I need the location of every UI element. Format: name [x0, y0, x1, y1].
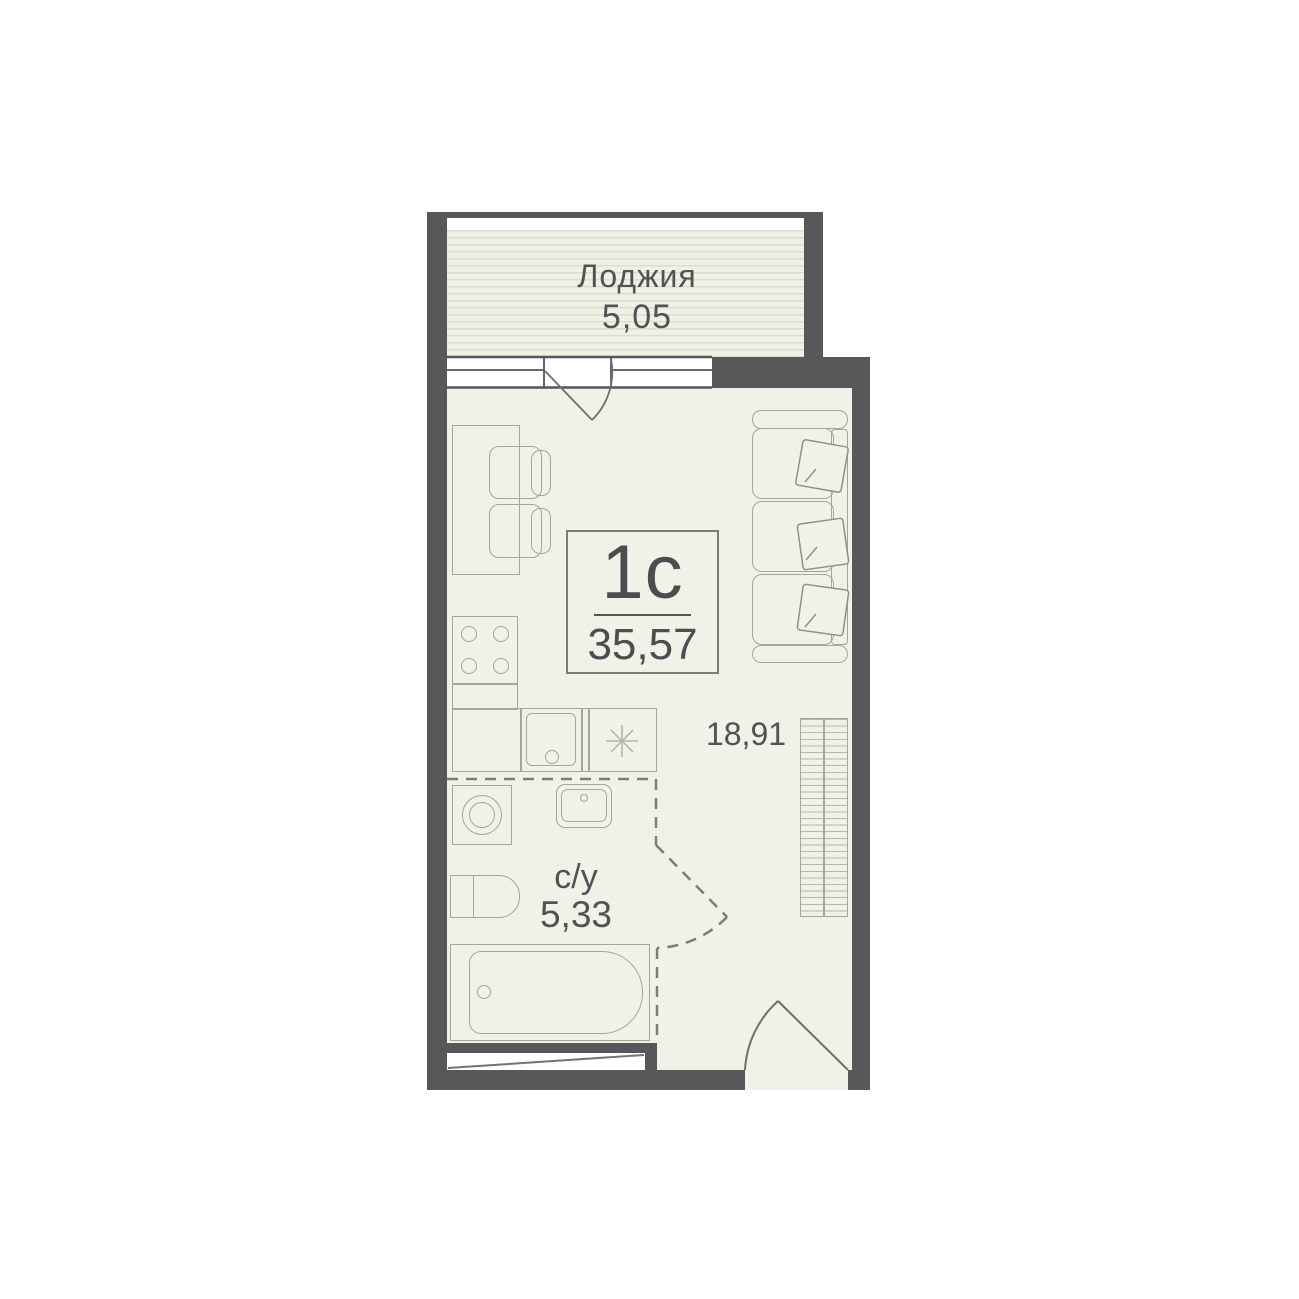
sofa-backrest — [831, 429, 848, 645]
bathtub-drain — [477, 985, 491, 999]
loggia-area: 5,05 — [447, 298, 827, 337]
floor-plan: Лоджия 5,05 1с 35,57 18,91 с/у 5,33 — [0, 0, 1299, 1299]
washing-machine-drum — [469, 802, 495, 828]
toilet-bowl — [473, 875, 520, 918]
sofa-cushion — [752, 428, 834, 499]
toilet-tank — [450, 875, 474, 918]
stove — [452, 616, 518, 684]
stove-burner — [493, 626, 509, 642]
counter-divider — [581, 708, 583, 772]
chair-back-1 — [531, 450, 551, 496]
unit-info-box: 1с 35,57 — [566, 530, 719, 674]
unit-info-divider — [594, 614, 691, 616]
loggia-wall-top — [427, 212, 823, 218]
bathroom-window-pier — [645, 1053, 657, 1070]
living-room-area: 18,91 — [696, 716, 796, 753]
unit-total-area: 35,57 — [587, 623, 697, 667]
kitchen-counter-connector — [452, 684, 518, 710]
counter-divider — [520, 708, 522, 772]
sofa-armrest-bottom — [752, 645, 848, 663]
chair-back-2 — [531, 508, 551, 554]
wall-top-right — [712, 357, 870, 388]
wardrobe-divider — [823, 718, 825, 917]
wall-right — [852, 388, 870, 1090]
counter-divider — [588, 708, 590, 772]
bathtub-basin — [469, 951, 643, 1034]
balcony-window-band — [447, 356, 712, 388]
wall-left — [427, 212, 447, 1090]
kitchen-sink-drain — [545, 750, 559, 764]
bathroom-wall-bottom — [447, 1043, 657, 1053]
bathroom-sink-hole — [580, 794, 588, 802]
sofa-cushion — [752, 501, 834, 572]
loggia-glazing-strip — [447, 218, 804, 230]
unit-type: 1с — [601, 538, 683, 608]
sofa-cushion — [752, 574, 834, 645]
wall-bottom-left — [427, 1070, 745, 1090]
stove-burner — [493, 658, 509, 674]
stove-burner — [461, 658, 477, 674]
bathroom-window-band — [447, 1053, 645, 1070]
entry-opening-floor — [745, 1070, 848, 1090]
stove-burner — [461, 626, 477, 642]
bathroom-label: с/у — [516, 858, 636, 897]
bathroom-area: 5,33 — [516, 894, 636, 936]
loggia-label: Лоджия — [447, 258, 827, 295]
wall-bottom-right — [848, 1070, 870, 1090]
sofa-armrest-top — [752, 410, 848, 429]
